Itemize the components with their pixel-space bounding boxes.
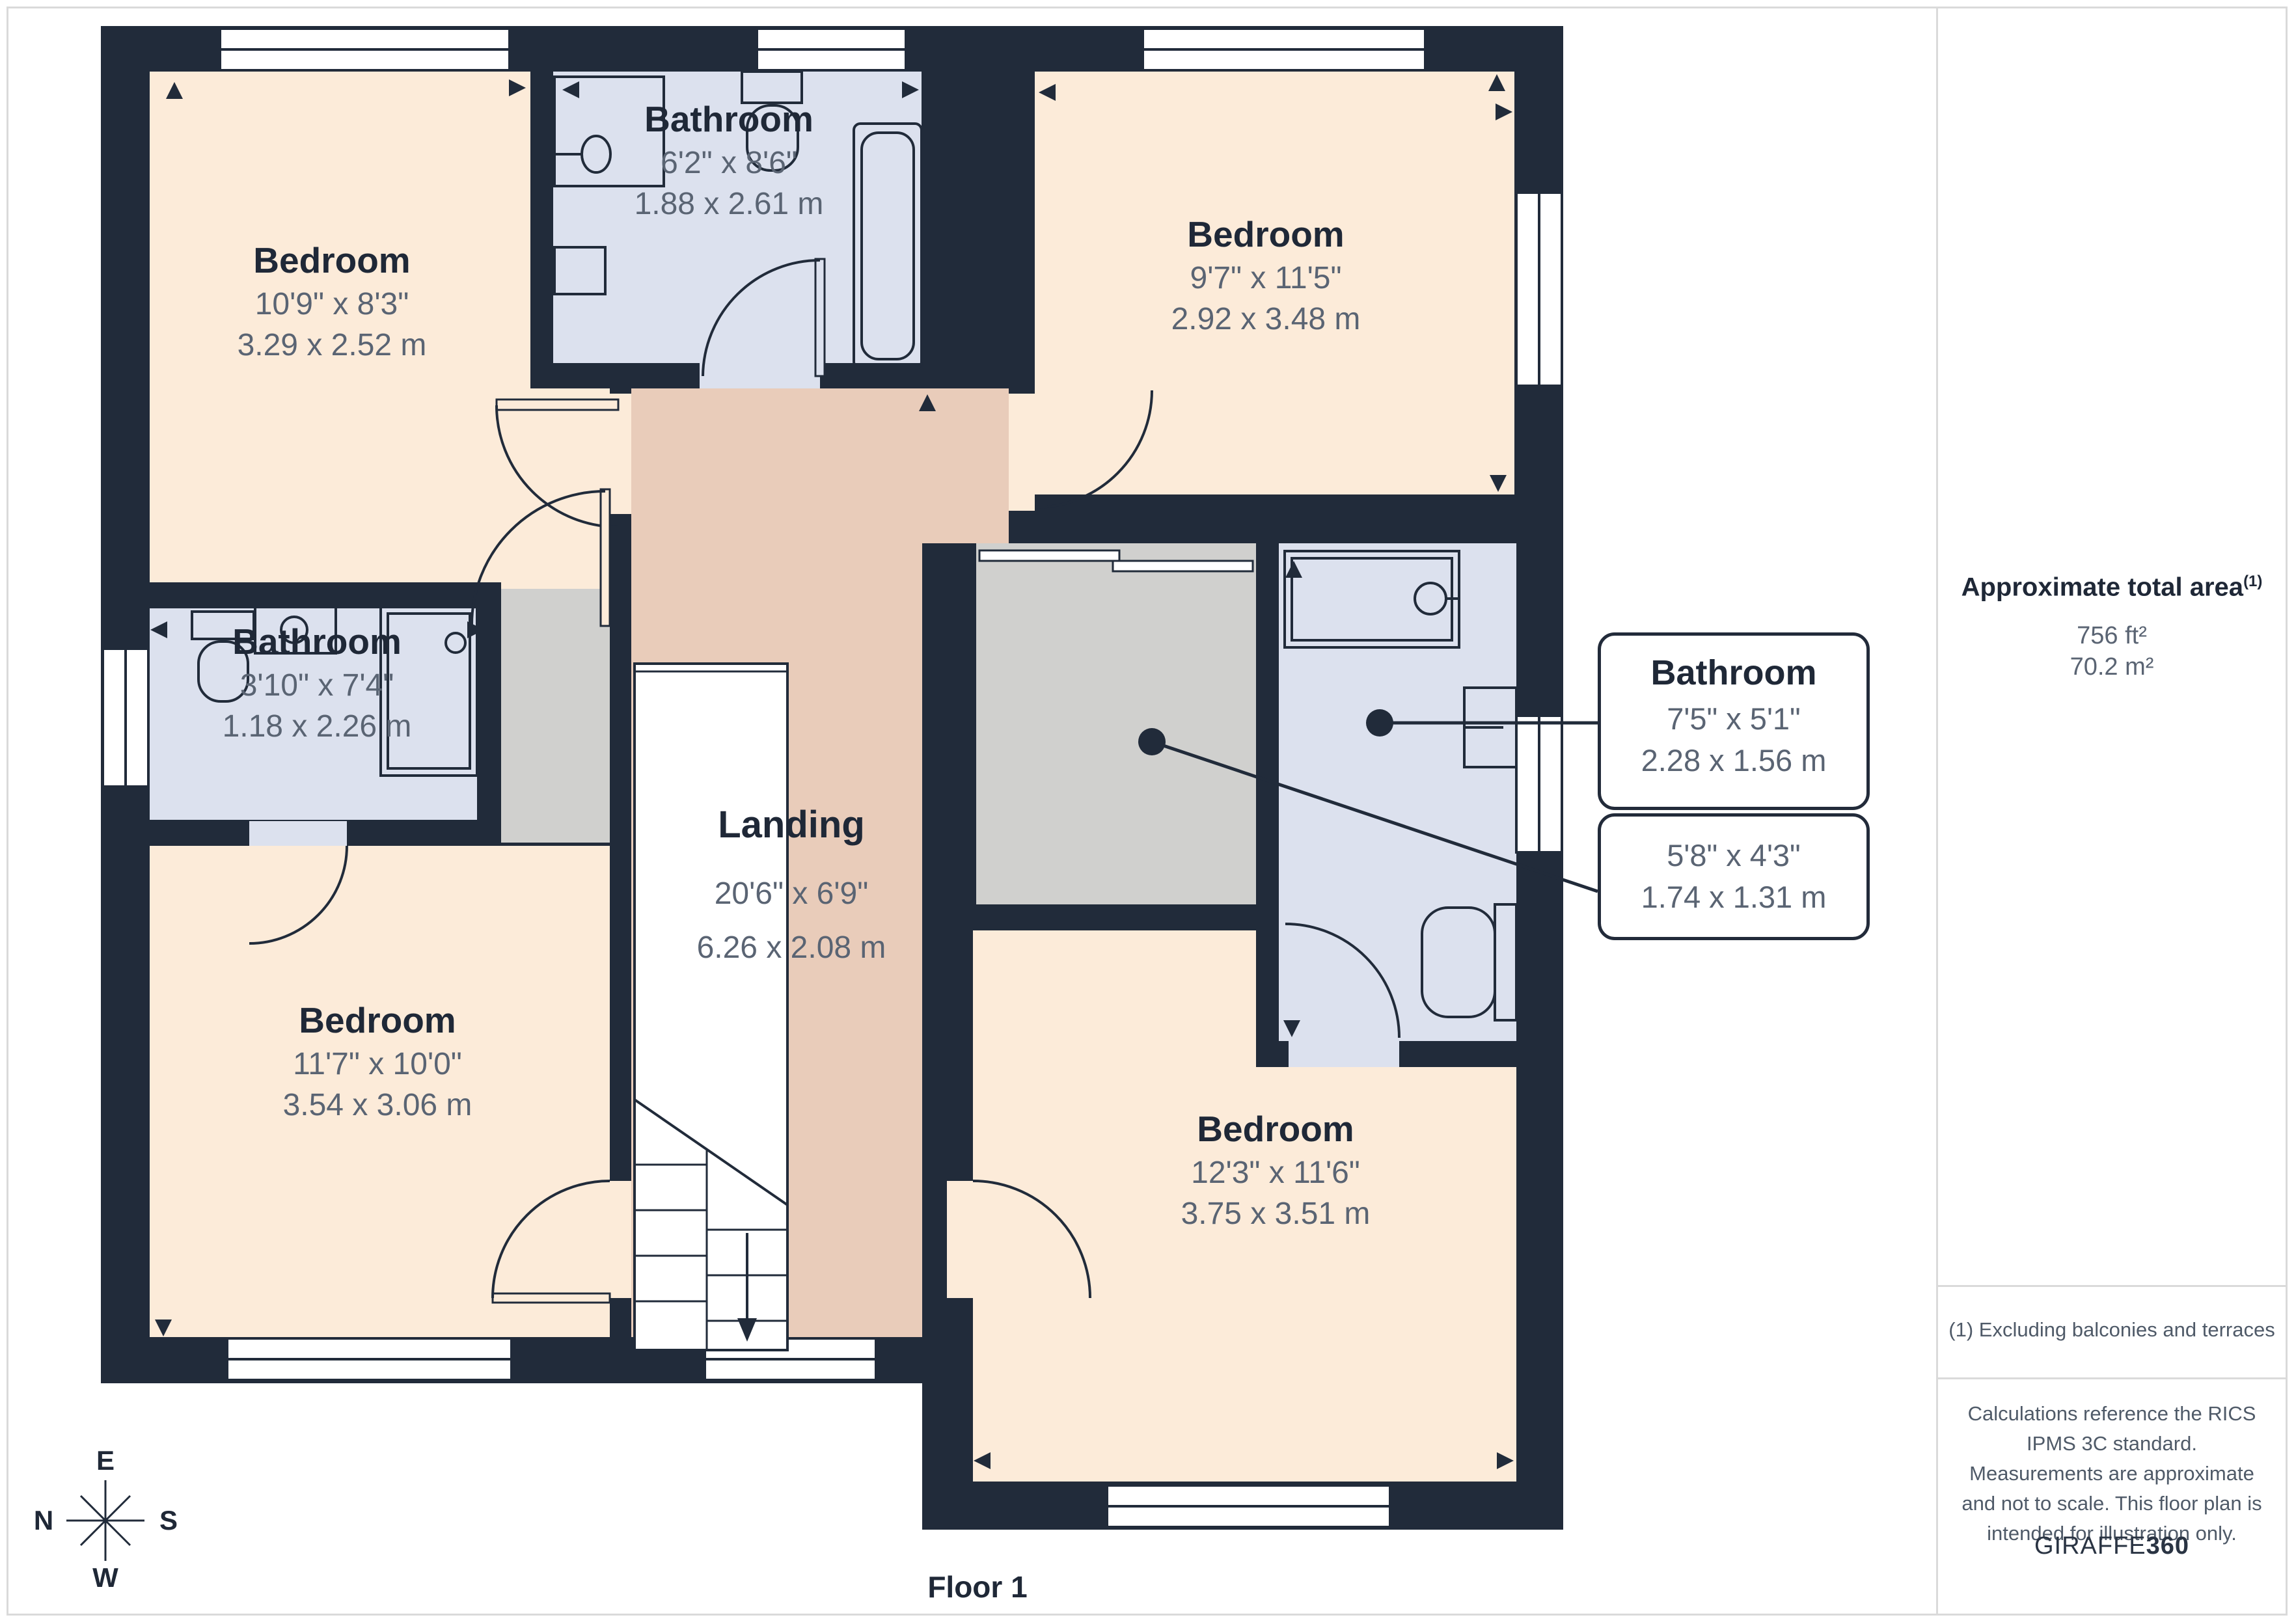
room-dims-imperial: 12'3" x 11'6"	[1181, 1152, 1371, 1193]
callout-name: Bathroom	[1601, 647, 1866, 698]
callout-dims-imperial: 7'5" x 5'1"	[1601, 698, 1866, 740]
compass-w-label: W	[92, 1562, 118, 1593]
disclaimer-text: Calculations reference the RICS IPMS 3C …	[1959, 1399, 2265, 1549]
callout-dims-metric: 1.74 x 1.31 m	[1601, 876, 1866, 918]
room-dims-metric: 3.75 x 3.51 m	[1181, 1193, 1371, 1234]
room-name: Bedroom	[238, 237, 427, 284]
callout-dims-metric: 2.28 x 1.56 m	[1601, 740, 1866, 781]
callout-closet: 5'8" x 4'3" 1.74 x 1.31 m	[1598, 813, 1870, 940]
room-name: Bedroom	[283, 997, 472, 1044]
room-dims-metric: 1.88 x 2.61 m	[635, 183, 824, 224]
door-leaf-icon	[815, 259, 825, 376]
room-label-bathroom-left: Bathroom 3'10" x 7'4" 1.18 x 2.26 m	[223, 618, 412, 747]
compass-n-label: N	[34, 1505, 53, 1536]
room-name: Bathroom	[635, 96, 824, 142]
sidebar-divider	[1938, 1377, 2288, 1379]
room-dims-imperial: 6'2" x 8'6"	[635, 142, 824, 183]
room-dims-metric: 3.29 x 2.52 m	[238, 325, 427, 366]
room-label-bathroom-top: Bathroom 6'2" x 8'6" 1.88 x 2.61 m	[635, 96, 824, 224]
area-imperial-value: 756 ft²	[2077, 620, 2147, 651]
compass-s-label: S	[159, 1505, 178, 1536]
door-leaf-icon	[601, 489, 610, 626]
area-title-text: Approximate total area	[1961, 573, 2243, 601]
window-icon	[220, 29, 510, 70]
sidebar-divider	[1938, 1285, 2288, 1287]
window-icon	[1107, 1485, 1390, 1527]
giraffe360-logo: GIRAFFE360	[2034, 1532, 2189, 1560]
room-label-bedroom-bottom-right: Bedroom 12'3" x 11'6" 3.75 x 3.51 m	[1181, 1105, 1371, 1234]
room-label-landing: Landing 20'6" x 6'9" 6.26 x 2.08 m	[697, 800, 886, 968]
brand-prefix: GIRAFFE	[2034, 1532, 2146, 1560]
room-name: Bathroom	[223, 618, 412, 665]
approximate-total-area-title: Approximate total area(1)	[1961, 573, 2263, 602]
room-dims-metric: 3.54 x 3.06 m	[283, 1085, 472, 1126]
room-dims-metric: 6.26 x 2.08 m	[697, 927, 886, 968]
room-label-bedroom-top-left: Bedroom 10'9" x 8'3" 3.29 x 2.52 m	[238, 237, 427, 366]
closet-large-floor	[976, 543, 1256, 904]
room-name: Bedroom	[1171, 211, 1361, 258]
closet-small-floor	[501, 589, 610, 843]
sidebar-left-border	[1936, 7, 1938, 1616]
compass-e-label: E	[96, 1445, 115, 1476]
room-bathroom-right-floor	[1279, 543, 1516, 1041]
window-icon	[103, 649, 148, 787]
room-dims-imperial: 20'6" x 6'9"	[697, 873, 886, 914]
compass-icon: N E S W	[34, 1445, 178, 1593]
room-label-bedroom-bottom-left: Bedroom 11'7" x 10'0" 3.54 x 3.06 m	[283, 997, 472, 1126]
window-icon	[1516, 193, 1562, 386]
leader-dot	[1138, 728, 1166, 755]
footnote-text: (1) Excluding balconies and terraces	[1948, 1318, 2275, 1342]
room-name: Bedroom	[1181, 1105, 1371, 1152]
window-icon	[227, 1338, 512, 1380]
room-dims-imperial: 10'9" x 8'3"	[238, 284, 427, 325]
stairs	[635, 664, 787, 1350]
floor-title: Floor 1	[927, 1569, 1027, 1604]
room-dims-metric: 2.92 x 3.48 m	[1171, 299, 1361, 340]
window-icon	[757, 29, 906, 70]
room-dims-imperial: 11'7" x 10'0"	[283, 1044, 472, 1085]
room-name: Landing	[697, 800, 886, 850]
door-leaf-icon	[493, 1293, 610, 1303]
room-label-bedroom-top-right: Bedroom 9'7" x 11'5" 2.92 x 3.48 m	[1171, 211, 1361, 340]
window-icon	[1516, 716, 1562, 852]
room-dims-metric: 1.18 x 2.26 m	[223, 706, 412, 747]
brand-suffix: 360	[2146, 1532, 2189, 1560]
window-icon	[1143, 29, 1425, 70]
callout-bathroom: Bathroom 7'5" x 5'1" 2.28 x 1.56 m	[1598, 632, 1870, 810]
callout-dims-imperial: 5'8" x 4'3"	[1601, 835, 1866, 876]
area-metric-value: 70.2 m²	[2070, 651, 2154, 683]
area-footnote-marker: (1)	[2243, 573, 2262, 590]
room-dims-imperial: 9'7" x 11'5"	[1171, 258, 1361, 299]
leader-dot	[1366, 709, 1393, 737]
door-leaf-icon	[497, 399, 618, 410]
room-dims-imperial: 3'10" x 7'4"	[223, 665, 412, 706]
